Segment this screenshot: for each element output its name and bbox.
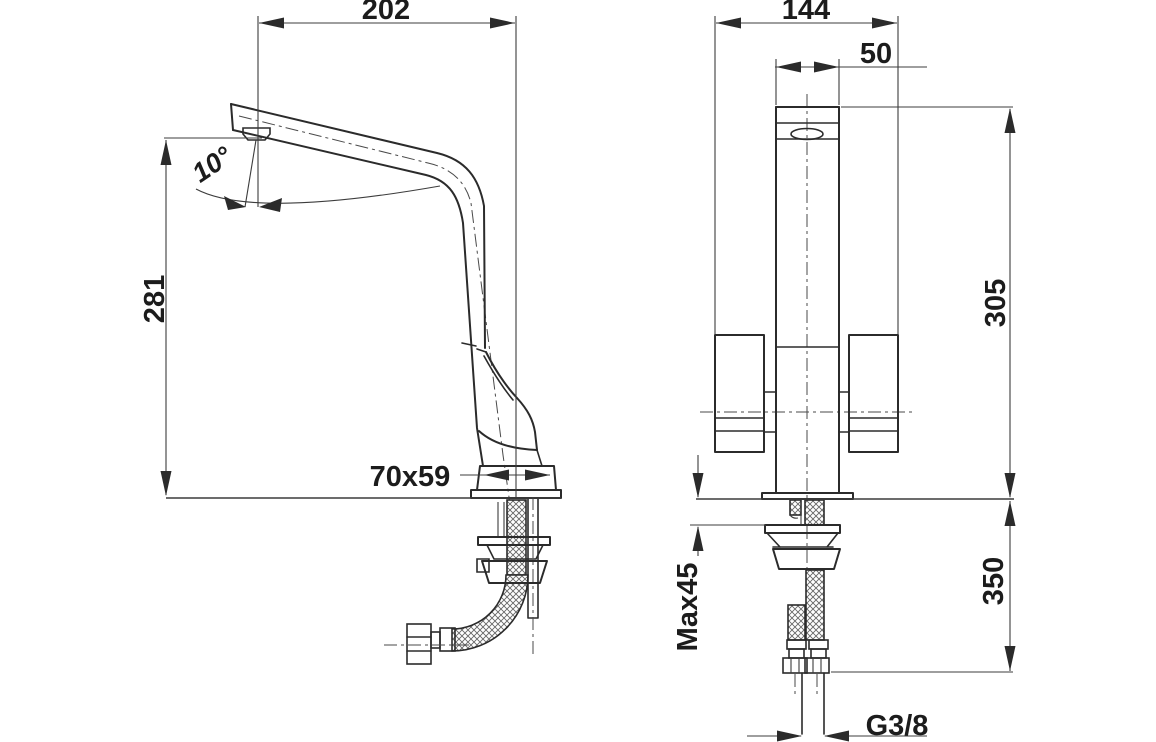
label-max-deck-thickness: Max45 [672, 563, 704, 652]
label-base-footprint: 70x59 [370, 461, 451, 493]
dim-max-deck-thickness [690, 455, 766, 556]
side-undercounter [384, 497, 550, 664]
dimension-linework [161, 16, 1016, 742]
hose-nut [407, 624, 431, 664]
technical-drawing-canvas: 202 144 50 10° 281 305 350 Max45 70x59 G… [0, 0, 1156, 742]
label-length-below-deck: 350 [978, 557, 1010, 605]
hose-shank-right [805, 500, 824, 525]
left-handle [715, 335, 764, 452]
front-undercounter [765, 500, 840, 734]
faucet-technical-drawing: 202 144 50 10° 281 305 350 Max45 70x59 G… [0, 0, 1156, 742]
label-connection-thread: G3/8 [866, 710, 929, 742]
label-spout-height: 281 [139, 275, 171, 323]
side-handle-lever [462, 343, 542, 466]
hose-below-right [806, 570, 824, 640]
spout-outline [231, 104, 485, 466]
front-view [700, 94, 913, 734]
hose-nut-left [783, 658, 807, 673]
hose-ferrule [431, 632, 440, 648]
dim-body-width [775, 59, 927, 105]
hose-shank-left [790, 500, 801, 515]
label-height-above-deck: 305 [980, 279, 1012, 327]
hose-below-left [788, 605, 805, 640]
dim-base-footprint [460, 470, 550, 481]
label-spout-angle: 10° [187, 141, 238, 189]
label-overall-width: 144 [782, 0, 830, 26]
hose-end-fittings [783, 640, 829, 673]
dim-spout-height [161, 138, 263, 496]
braided-hose-curve [452, 575, 528, 651]
label-body-width: 50 [860, 38, 892, 70]
g38-thread-pipe [802, 673, 824, 734]
side-view [231, 104, 561, 664]
right-handle [849, 335, 898, 452]
hose-nut-right [805, 658, 829, 673]
mounting-hardware-front [765, 525, 840, 569]
label-spout-reach: 202 [362, 0, 410, 26]
dimension-labels: 202 144 50 10° 281 305 350 Max45 70x59 G… [139, 0, 1012, 742]
